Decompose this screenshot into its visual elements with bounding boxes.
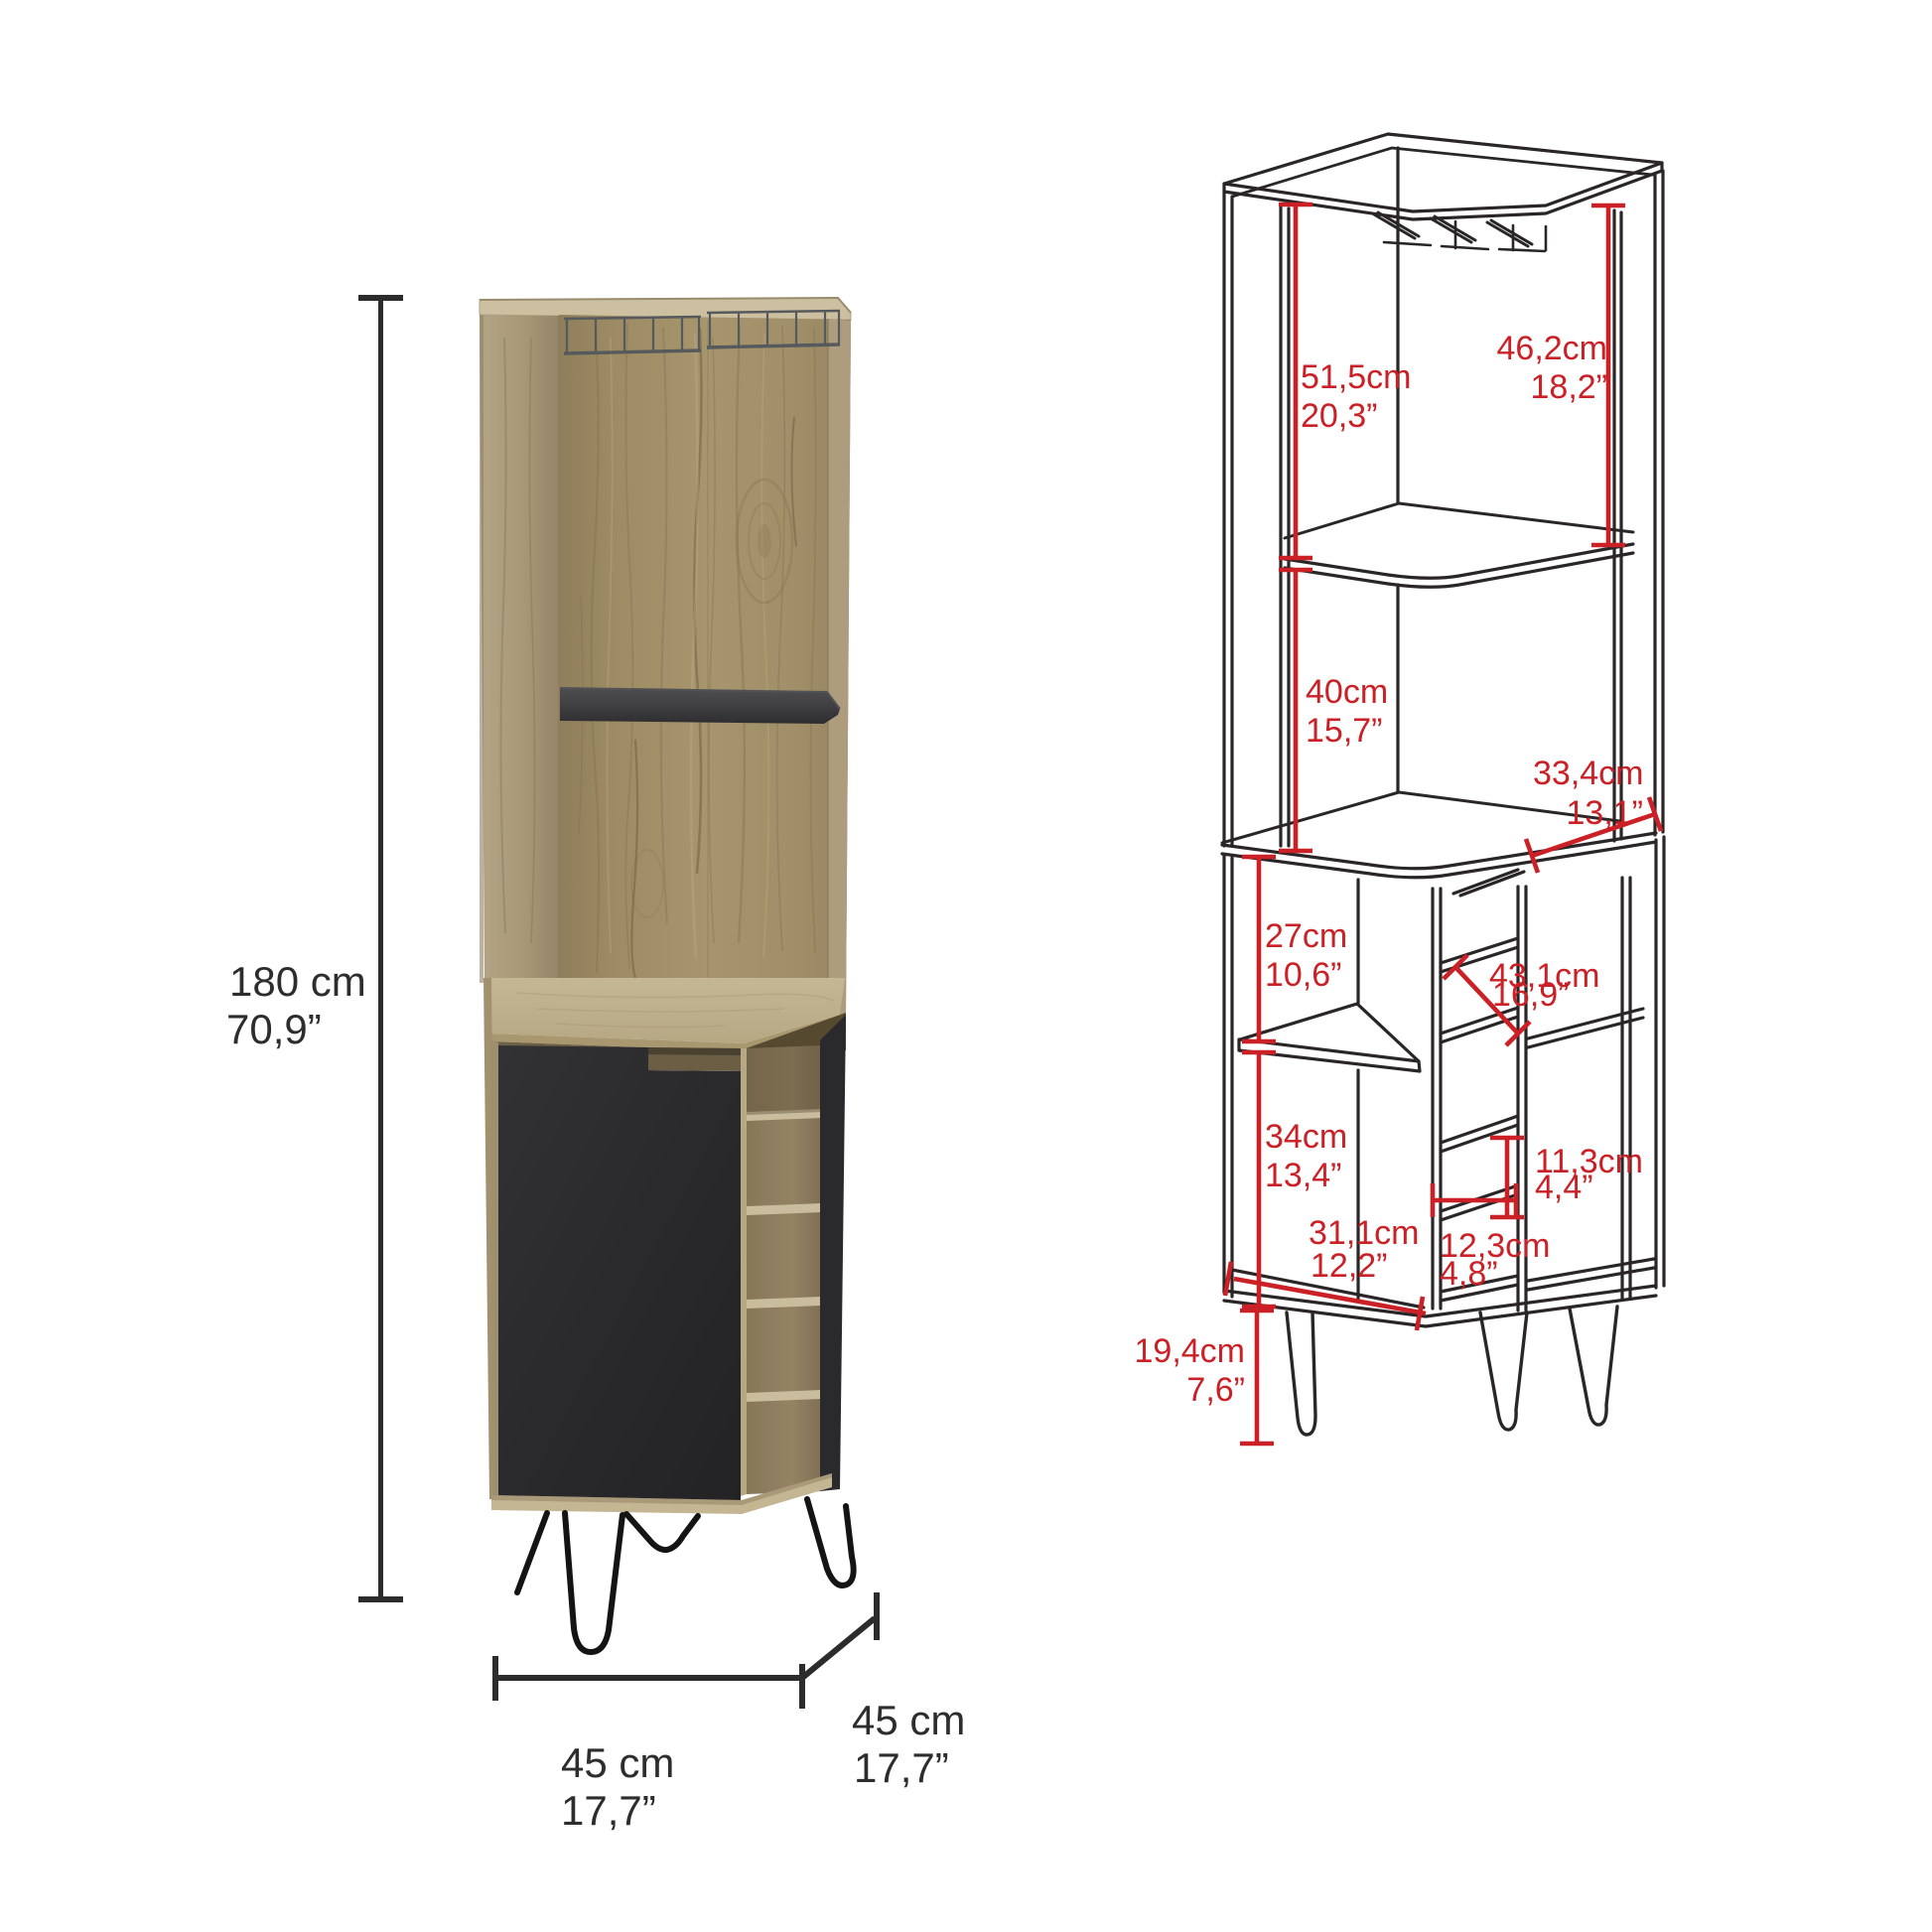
svg-text:10,6”: 10,6” bbox=[1265, 956, 1342, 994]
svg-text:7,6”: 7,6” bbox=[1186, 1371, 1245, 1409]
svg-text:13,1”: 13,1” bbox=[1567, 794, 1644, 832]
svg-text:16,9”: 16,9” bbox=[1492, 976, 1570, 1014]
svg-text:15,7”: 15,7” bbox=[1306, 712, 1383, 750]
svg-text:45 cm: 45 cm bbox=[561, 1739, 674, 1786]
svg-text:13,4”: 13,4” bbox=[1265, 1157, 1342, 1194]
svg-text:46,2cm: 46,2cm bbox=[1497, 330, 1608, 367]
svg-text:34cm: 34cm bbox=[1265, 1118, 1347, 1156]
svg-text:18,2”: 18,2” bbox=[1531, 368, 1608, 406]
svg-text:33,4cm: 33,4cm bbox=[1533, 755, 1644, 792]
svg-text:19,4cm: 19,4cm bbox=[1135, 1332, 1246, 1370]
svg-text:45 cm: 45 cm bbox=[852, 1697, 965, 1743]
svg-text:4,4”: 4,4” bbox=[1535, 1169, 1593, 1206]
svg-text:40cm: 40cm bbox=[1306, 673, 1388, 711]
svg-text:12,2”: 12,2” bbox=[1311, 1247, 1388, 1285]
svg-text:17,7”: 17,7” bbox=[561, 1787, 656, 1834]
svg-text:51,5cm: 51,5cm bbox=[1301, 358, 1412, 396]
svg-text:27cm: 27cm bbox=[1265, 917, 1347, 955]
svg-text:180 cm: 180 cm bbox=[229, 958, 366, 1005]
svg-text:20,3”: 20,3” bbox=[1301, 397, 1378, 435]
svg-text:4,8”: 4,8” bbox=[1440, 1255, 1498, 1293]
svg-text:17,7”: 17,7” bbox=[854, 1744, 949, 1791]
svg-text:70,9”: 70,9” bbox=[226, 1006, 322, 1052]
